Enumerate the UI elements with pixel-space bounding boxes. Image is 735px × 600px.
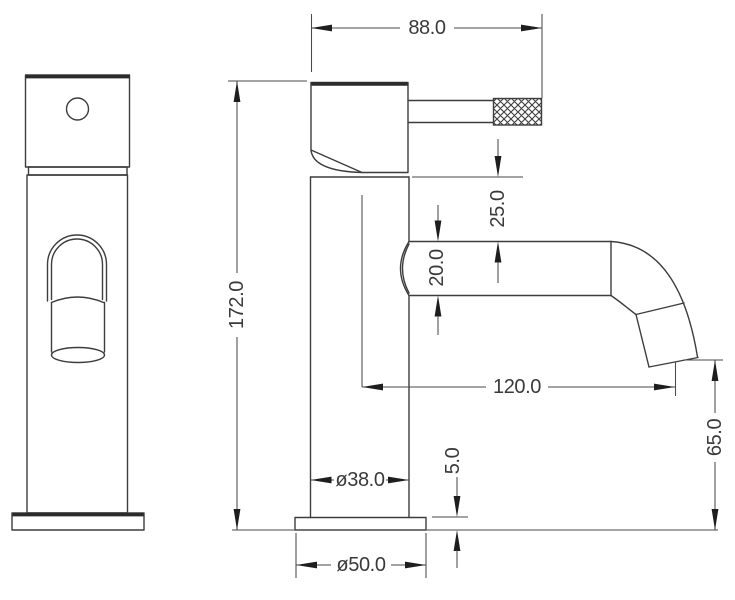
dimension-body-diameter: ø38.0 [311, 469, 410, 491]
front-handle-housing [26, 75, 130, 167]
dim-arrow-right [654, 384, 675, 391]
spout-elbow-inner-curve [611, 296, 636, 315]
front-spout-outer-arch [48, 235, 107, 301]
front-spout-outlet [52, 348, 105, 363]
dimension-label-5: 5.0 [442, 447, 464, 474]
dimension-base-thickness: 5.0 [432, 447, 468, 568]
front-view [12, 75, 144, 530]
dimension-label-50: ø50.0 [336, 554, 385, 576]
dim-arrow-down [712, 509, 719, 530]
spout-outlet-left-edge [636, 315, 649, 368]
front-collar-band [29, 167, 128, 175]
dimension-overall-height: 172.0 [226, 81, 307, 530]
front-spout-inner-arch [52, 239, 103, 300]
dimension-label-20: 20.0 [426, 249, 448, 287]
dim-arrow-right [388, 477, 409, 484]
dim-arrow-up [495, 242, 502, 263]
dim-arrow-left [311, 25, 332, 32]
dimension-base-diameter: ø50.0 [296, 533, 426, 578]
dimension-label-65: 65.0 [704, 419, 726, 457]
dim-arrow-left [311, 477, 332, 484]
dimension-label-88: 88.0 [408, 17, 446, 39]
handle-knurled-grip [494, 99, 542, 126]
dim-arrow-down [234, 509, 241, 530]
drawing-svg: 88.0 172.0 25.0 20.0 120.0 [0, 0, 735, 600]
dim-arrow-up [435, 296, 442, 317]
spout-elbow-outer-curve [611, 242, 698, 358]
spout-outlet-joint-line [636, 303, 684, 315]
spout-junction-outer-arc [401, 242, 410, 296]
dimension-spout-tube: 20.0 [426, 205, 448, 335]
dim-arrow-left [362, 384, 383, 391]
dimension-label-172: 172.0 [226, 281, 248, 329]
side-handle-housing [311, 83, 408, 173]
dimension-label-120: 120.0 [493, 376, 541, 398]
front-spout-mid-arc [52, 297, 104, 303]
spout-outlet-face [649, 358, 698, 368]
dimension-outlet-height: 65.0 [683, 360, 726, 530]
dim-arrow-left [296, 562, 317, 569]
dim-arrow-down [495, 156, 502, 177]
dim-arrow-up [234, 81, 241, 102]
faucet-technical-drawing: 88.0 172.0 25.0 20.0 120.0 [0, 0, 735, 600]
dimension-label-25: 25.0 [487, 190, 509, 228]
front-handle-button [67, 98, 89, 120]
dim-arrow-down [435, 221, 442, 242]
dim-arrow-up [454, 530, 461, 551]
side-base-plate [295, 518, 426, 531]
dimension-label-38: ø38.0 [335, 469, 384, 491]
dim-arrow-right [405, 562, 426, 569]
dim-arrow-down [454, 496, 461, 517]
side-view [295, 83, 698, 531]
dim-arrow-up [712, 360, 719, 381]
front-body-column [27, 175, 128, 513]
dim-arrow-right [521, 25, 542, 32]
